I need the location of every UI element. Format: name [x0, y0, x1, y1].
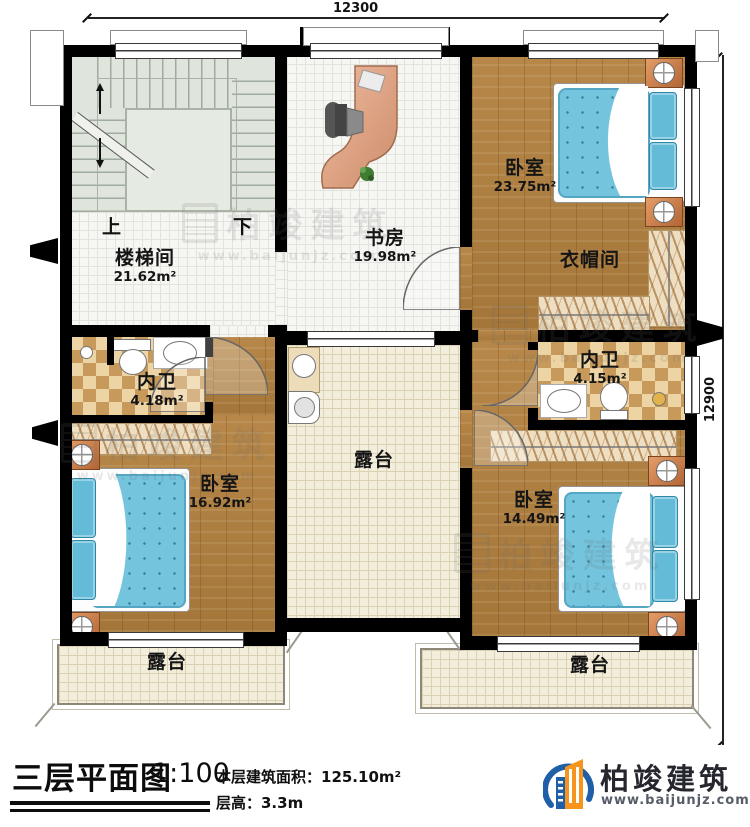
stair-arrow-up-head [96, 83, 104, 91]
floor-drain [80, 346, 93, 359]
hall-door-opening-floor [210, 325, 268, 337]
drawing-title: 三层平面图 [12, 753, 172, 798]
brand-name: 柏竣建筑 [600, 756, 732, 798]
lamp-icon [656, 460, 678, 482]
sliding-door-bedroom-right-terrace [497, 636, 640, 652]
terrace-bottom-left-label: 露台 [122, 652, 212, 674]
wall-mid-right-a [460, 330, 478, 342]
wardrobe-cloakroom-bottom [538, 296, 650, 332]
sliding-door-study-terrace [307, 331, 435, 347]
bedroom-bottom-right-label: 卧室 14.49m² [492, 490, 576, 527]
door-arc-bathroom-right [482, 350, 538, 406]
study-door-opening-floor [460, 247, 472, 310]
monitor-screen [347, 108, 363, 136]
window-bathroom-right [684, 356, 700, 414]
wall-terrace-center-bottom [287, 618, 472, 632]
plant-leaf [360, 167, 366, 173]
window-bedroom-bottom-right [684, 468, 700, 600]
corridor-right-opening-floor [478, 330, 538, 342]
wall-bath-left-stub [107, 337, 114, 365]
plant-leaf [368, 175, 374, 181]
nightstand [645, 58, 683, 88]
wall-mid-right-b [538, 330, 695, 342]
bed-bottom-right-blanket [604, 490, 650, 606]
bedroom-bottom-left-label: 卧室 16.92m² [178, 474, 262, 511]
title-underline [10, 809, 210, 812]
toilet-tank [600, 410, 628, 420]
floor-drain [652, 392, 666, 406]
terrace-door-opening-floor [460, 410, 472, 468]
wall-mid-left-a [60, 325, 210, 337]
wall-study-terrace-b [433, 331, 460, 345]
monitor-back [335, 104, 347, 136]
brand-logo-icon [543, 755, 595, 813]
wall-bath-left-side-b [205, 402, 213, 415]
window-stairwell-top [115, 43, 242, 59]
brand-website: www.baijunjz.com [601, 793, 750, 808]
lamp-icon [653, 62, 675, 84]
wall-bath-right-side-b [528, 408, 538, 430]
wall-bath-right-bottom [538, 420, 685, 430]
floor-plan-page: 上 下 [0, 0, 750, 827]
window-study-bay [310, 43, 442, 59]
stair-treads-right [232, 78, 275, 212]
pillow [649, 92, 677, 140]
terrace-center-label: 露台 [334, 450, 414, 472]
wall-bottom-left-b [242, 632, 287, 646]
bathroom-left-label: 内卫 4.18m² [120, 372, 194, 409]
floor-height-text: 层高：3.3m [216, 792, 303, 813]
window-bedroom-top [528, 43, 659, 59]
floor-area-text: 本层建筑面积：125.10m² [216, 766, 401, 787]
lamp-icon [71, 444, 93, 466]
stair-down-label: 下 [233, 212, 252, 239]
nightstand [645, 197, 683, 227]
stair-arrow-down [99, 138, 101, 162]
wall-mid-left-b [268, 325, 287, 337]
sliding-door-bedroom-left-terrace [108, 632, 244, 648]
cloakroom-label: 衣帽间 [545, 250, 635, 272]
wall-study-terrace-a [287, 331, 307, 345]
wall-bath-right-side-a [528, 342, 538, 350]
pillow [649, 142, 677, 190]
bed-top-right-blanket [600, 86, 648, 196]
window-bedroom-top-right [684, 88, 700, 207]
roof-chamfer-line [691, 705, 712, 729]
wall-bath-left-bottom [68, 415, 213, 423]
title-underline [10, 801, 210, 805]
stairwell-label: 楼梯间 21.62m² [85, 248, 205, 285]
laundry-sink [292, 354, 316, 378]
wall-terrace-right-a [460, 342, 472, 410]
bathroom-right-label: 内卫 4.15m² [563, 350, 637, 387]
study-label: 书房 19.98m² [330, 228, 440, 265]
wall-terrace-right-b [460, 468, 472, 636]
exterior-box-top-right [695, 30, 719, 62]
washing-machine-drum [294, 397, 315, 418]
sink-basin [547, 389, 581, 413]
door-arc-terrace-bedroom-right [474, 410, 528, 466]
roof-chamfer-line [35, 703, 56, 727]
stair-arrow-up [99, 90, 101, 114]
pillow [652, 496, 678, 548]
exterior-box-top-left [30, 30, 64, 106]
pillow [652, 550, 678, 602]
terrace-bottom-right-label: 露台 [545, 655, 635, 677]
lamp-icon [656, 616, 678, 638]
wall-stair-study [275, 45, 287, 252]
nightstand [648, 456, 686, 486]
wall-bottom-left-a [60, 632, 108, 646]
lamp-icon [653, 201, 675, 223]
wall-left [60, 45, 72, 646]
elevation-marker [30, 238, 58, 264]
wardrobe-cloakroom-right [648, 230, 687, 327]
wall-bottom-right-a [460, 636, 497, 650]
dimension-right-value: 12900 [703, 377, 718, 422]
desk-with-computer [305, 62, 405, 192]
hall-study-opening-floor [275, 252, 287, 325]
bedroom-top-right-label: 卧室 23.75m² [477, 158, 573, 195]
dimension-line-top [88, 17, 665, 19]
wall-study-bedroom [460, 45, 472, 247]
door-arc-hall-bedroom-left [205, 337, 268, 395]
wall-terrace-left [275, 337, 287, 632]
elevation-marker [697, 320, 723, 346]
stair-arrow-down-head [96, 160, 104, 168]
pillow [70, 540, 96, 600]
dimension-line-right [722, 55, 724, 745]
elevation-marker [32, 420, 58, 446]
stair-up-label: 上 [102, 212, 121, 239]
dimension-top-value: 12300 [333, 1, 378, 16]
wall-bottom-right-b [638, 636, 695, 650]
title-block: 三层平面图 1:100 本层建筑面积：125.10m² 层高：3.3m 柏竣建筑… [0, 745, 750, 827]
pillow [70, 478, 96, 538]
